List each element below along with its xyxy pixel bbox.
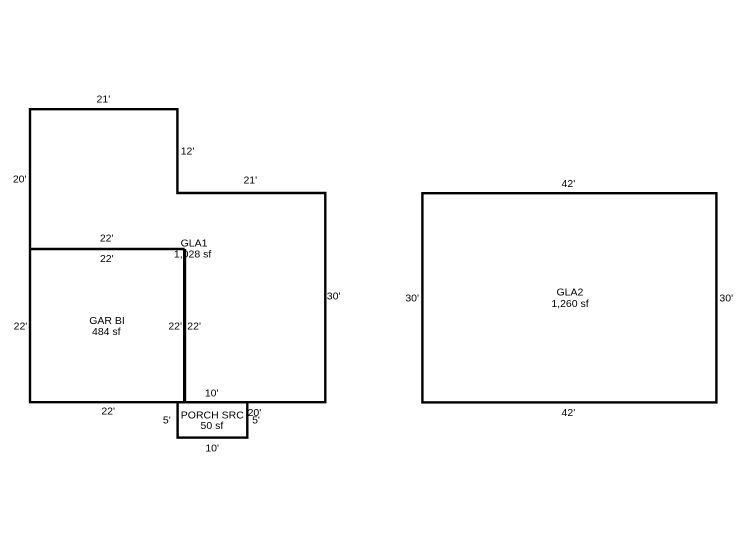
svg-text:22': 22' [100,253,114,265]
svg-text:20': 20' [13,173,27,185]
svg-text:30': 30' [405,293,419,305]
svg-text:22': 22' [168,320,182,332]
svg-text:21': 21' [97,94,111,106]
svg-text:30': 30' [719,293,733,305]
svg-text:GLA2: GLA2 [556,287,583,299]
svg-text:30': 30' [327,290,341,302]
svg-text:21': 21' [243,175,257,187]
svg-text:10': 10' [205,387,219,399]
svg-text:1,028 sf: 1,028 sf [174,249,211,261]
svg-text:22': 22' [187,320,201,332]
svg-text:1,260 sf: 1,260 sf [551,298,588,310]
svg-text:42': 42' [562,178,576,190]
svg-text:GLA1: GLA1 [181,237,208,249]
svg-text:22': 22' [100,233,114,245]
svg-text:10': 10' [205,443,219,455]
svg-text:5': 5' [252,415,260,427]
svg-text:12': 12' [181,146,195,158]
svg-text:50 sf: 50 sf [201,420,224,432]
svg-text:5': 5' [163,415,171,427]
svg-text:42': 42' [562,407,576,419]
svg-text:22': 22' [101,405,115,417]
svg-text:484 sf: 484 sf [92,326,121,338]
svg-text:22': 22' [14,320,28,332]
